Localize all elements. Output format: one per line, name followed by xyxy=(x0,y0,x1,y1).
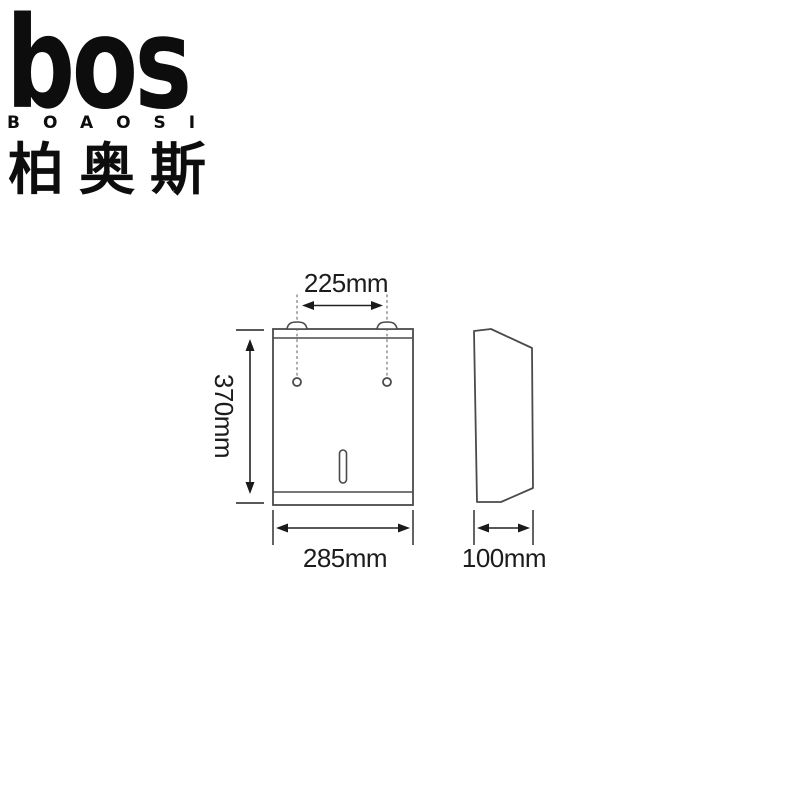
dimension-hole-spacing: 225mm xyxy=(302,268,388,310)
height-arrowhead-bottom xyxy=(246,482,255,494)
towel-slot xyxy=(340,450,347,483)
side-view xyxy=(474,329,533,502)
dimension-height: 370mm xyxy=(209,330,264,503)
dimension-width: 285mm xyxy=(273,510,413,573)
width-label: 285mm xyxy=(303,543,387,573)
right-screw-hole xyxy=(383,378,391,386)
height-label: 370mm xyxy=(209,374,239,458)
height-arrowhead-top xyxy=(246,339,255,351)
depth-arrowhead-right xyxy=(518,524,530,533)
hole-spacing-arrowhead-left xyxy=(302,301,314,310)
left-mounting-tab xyxy=(287,322,307,329)
width-arrowhead-right xyxy=(398,524,410,533)
front-view xyxy=(273,295,413,505)
right-mounting-tab xyxy=(377,322,397,329)
width-arrowhead-left xyxy=(276,524,288,533)
side-body-outline xyxy=(474,329,533,502)
left-screw-hole xyxy=(293,378,301,386)
depth-label: 100mm xyxy=(462,543,546,573)
dimension-depth: 100mm xyxy=(462,510,546,573)
dimension-diagram: 225mm 370mm 285mm 100mm xyxy=(0,0,800,800)
hole-spacing-label: 225mm xyxy=(304,268,388,298)
product-dimension-page: bos BOAOSI 柏奥斯 xyxy=(0,0,800,800)
hole-spacing-arrowhead-right xyxy=(371,301,383,310)
depth-arrowhead-left xyxy=(477,524,489,533)
